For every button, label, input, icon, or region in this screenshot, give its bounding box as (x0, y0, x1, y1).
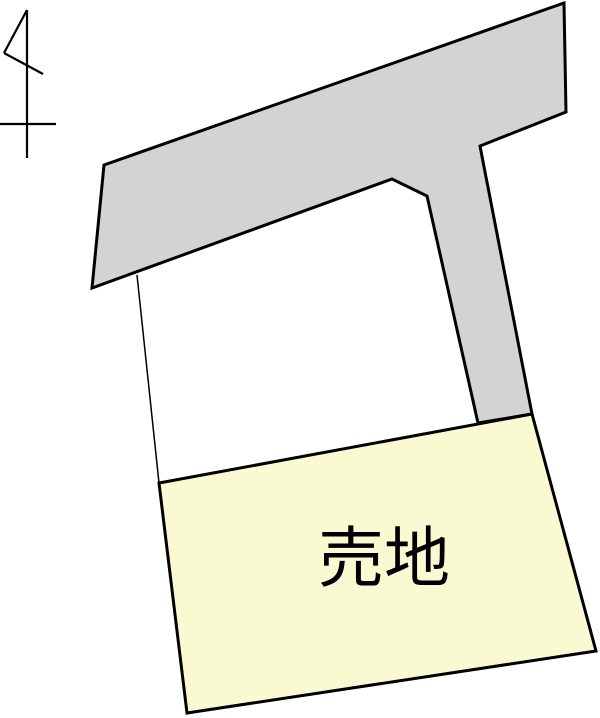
north-arrow-icon (0, 10, 56, 158)
site-plan-page: 売地 (0, 0, 600, 718)
north-arrow-flag-upper (4, 10, 27, 53)
parcel-boundary-line (137, 275, 159, 483)
road-area (92, 3, 566, 423)
plot-label: 売地 (318, 521, 450, 595)
north-arrow-flag-lower (4, 53, 43, 74)
site-plan-drawing: 売地 (0, 0, 600, 718)
